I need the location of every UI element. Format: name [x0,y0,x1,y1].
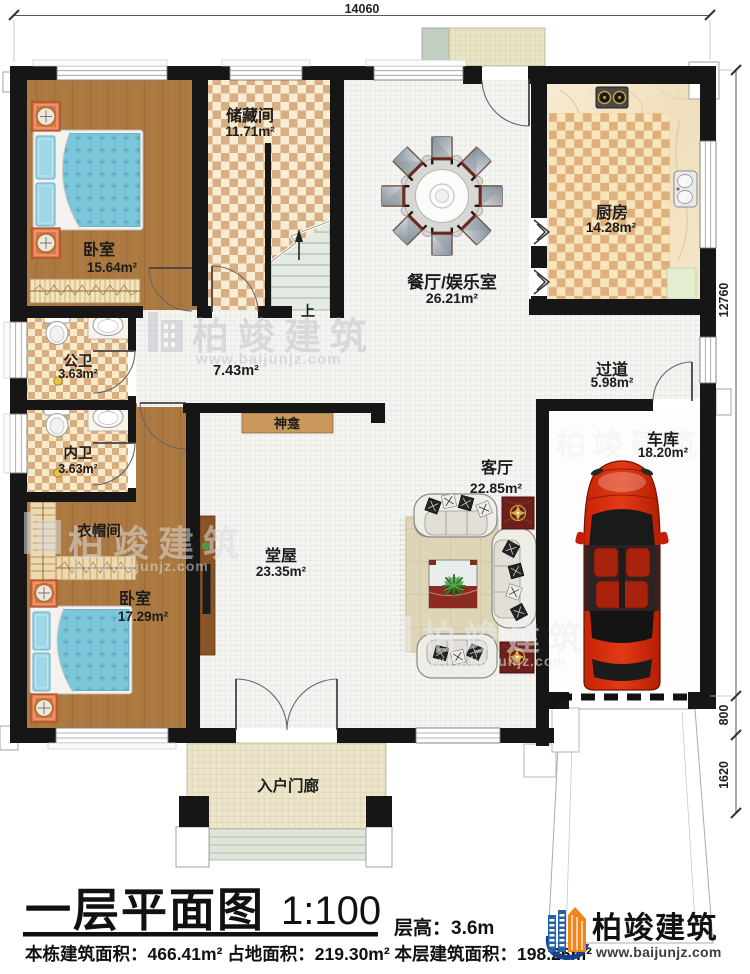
svg-text:18.20m²: 18.20m² [638,445,689,460]
svg-text:www.baijunjz.com: www.baijunjz.com [429,653,567,669]
svg-text:15.64m²: 15.64m² [87,260,138,275]
svg-text:3.63m²: 3.63m² [58,462,98,476]
svg-text:3.63m²: 3.63m² [58,367,98,381]
svg-text:衣帽间: 衣帽间 [77,522,121,540]
svg-text:5.98m²: 5.98m² [591,375,634,390]
svg-text:卧室: 卧室 [119,589,151,608]
svg-text:800: 800 [717,705,731,726]
svg-text:14.28m²: 14.28m² [586,220,637,235]
svg-text:上: 上 [301,303,315,319]
svg-text:卧室: 卧室 [83,240,115,259]
svg-text:柏竣建筑: 柏竣建筑 [592,911,718,945]
svg-text:1:100: 1:100 [281,889,381,933]
svg-text:餐厅/娱乐室: 餐厅/娱乐室 [407,272,497,292]
svg-text:本栋建筑面积：466.41m² 占地面积：219.30m²: 本栋建筑面积：466.41m² 占地面积：219.30m² 本层建筑面积：198… [25,944,592,964]
svg-text:入户门廊: 入户门廊 [257,776,320,795]
svg-text:26.21m²: 26.21m² [426,290,478,306]
svg-text:7.43m²: 7.43m² [213,363,259,379]
svg-text:14060: 14060 [345,2,380,16]
svg-text:22.85m²: 22.85m² [470,480,522,496]
svg-text:储藏间: 储藏间 [225,106,274,125]
svg-text:一层平面图: 一层平面图 [25,884,265,936]
svg-text:客厅: 客厅 [481,458,513,477]
svg-text:神龛: 神龛 [274,416,301,431]
svg-text:堂屋: 堂屋 [265,546,297,565]
svg-text:www.baijunjz.com: www.baijunjz.com [595,944,722,960]
svg-text:11.71m²: 11.71m² [225,124,275,139]
svg-text:17.29m²: 17.29m² [118,609,169,624]
svg-text:1620: 1620 [717,761,731,789]
svg-text:www.baijunjz.com: www.baijunjz.com [71,558,209,574]
svg-text:23.35m²: 23.35m² [256,564,307,579]
svg-text:内卫: 内卫 [64,444,93,462]
svg-text:12760: 12760 [717,283,731,318]
svg-text:层高：3.6m: 层高：3.6m [394,916,494,939]
